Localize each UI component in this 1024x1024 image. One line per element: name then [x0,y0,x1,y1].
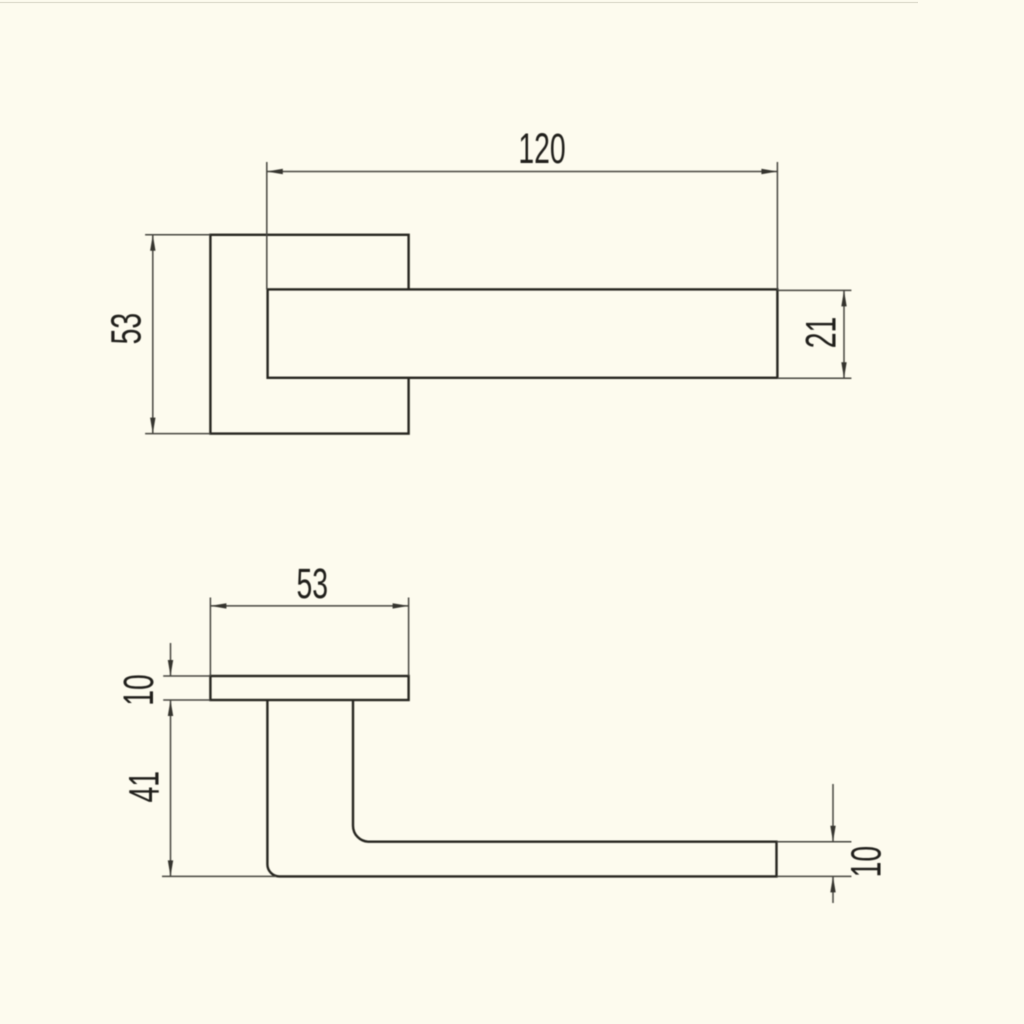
svg-text:53: 53 [102,313,150,345]
svg-text:10: 10 [842,846,890,878]
svg-text:41: 41 [120,771,168,803]
svg-text:21: 21 [796,317,844,349]
svg-text:53: 53 [297,559,329,607]
svg-text:120: 120 [518,124,565,172]
svg-text:10: 10 [114,674,162,706]
